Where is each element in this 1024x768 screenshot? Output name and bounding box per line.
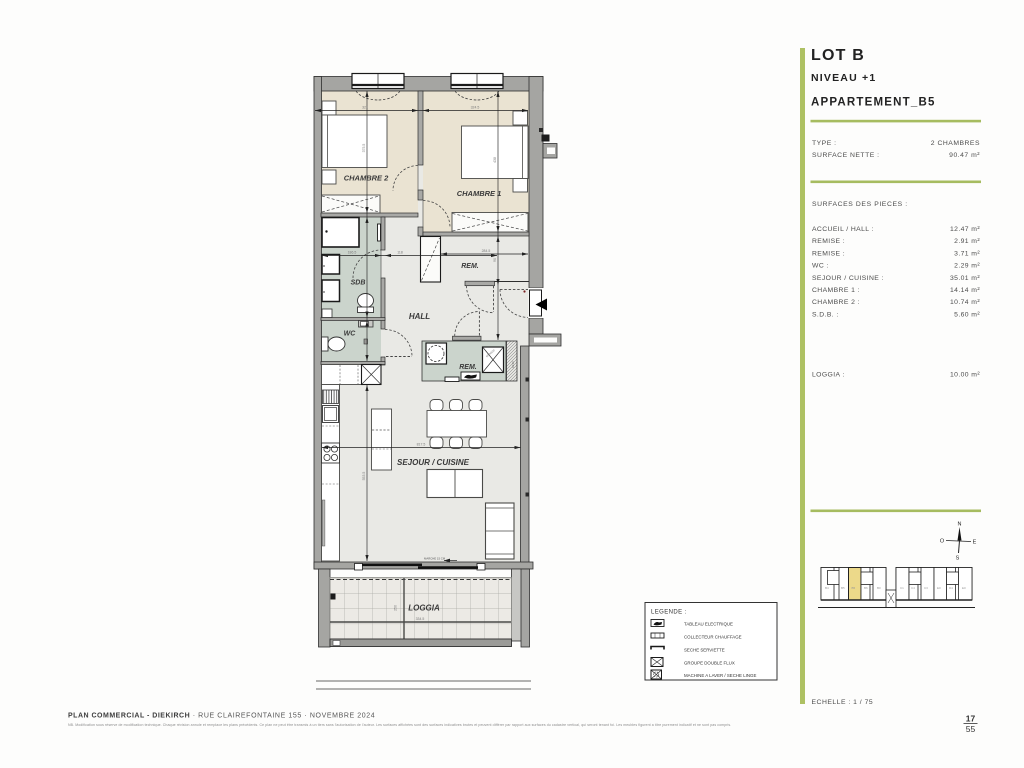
svg-text:ECHELLE : 1 / 75: ECHELLE : 1 / 75	[812, 699, 874, 706]
svg-text:CHAMBRE 2 :: CHAMBRE 2 :	[812, 299, 860, 306]
svg-text:35.01 m²: 35.01 m²	[950, 275, 980, 282]
svg-text:GROUPE DOUBLE FLUX: GROUPE DOUBLE FLUX	[684, 661, 735, 666]
svg-text:REM.: REM.	[461, 263, 479, 270]
svg-text:SURFACE NETTE :: SURFACE NETTE :	[812, 152, 880, 159]
svg-text:MARCHE 15 CM: MARCHE 15 CM	[424, 557, 446, 561]
svg-text:LOGGIA :: LOGGIA :	[812, 372, 845, 379]
svg-text:N: N	[958, 522, 962, 528]
svg-text:SEJOUR / CUISINE: SEJOUR / CUISINE	[397, 458, 470, 467]
svg-text:REMISE :: REMISE :	[812, 238, 845, 245]
svg-text:S: S	[956, 556, 960, 562]
svg-text:3.71 m²: 3.71 m²	[954, 250, 980, 257]
svg-text:55: 55	[966, 724, 976, 734]
svg-text:17: 17	[966, 714, 976, 724]
svg-text:E0: E0	[937, 586, 941, 590]
svg-text:O: O	[940, 539, 945, 545]
svg-text:E0: E0	[962, 586, 966, 590]
svg-text:12.47 m²: 12.47 m²	[950, 226, 980, 233]
svg-text:375.5: 375.5	[362, 144, 366, 153]
svg-text:817.5: 817.5	[417, 443, 426, 447]
svg-text:WC: WC	[344, 331, 357, 338]
svg-text:REMISE :: REMISE :	[812, 250, 845, 257]
svg-text:2.29 m²: 2.29 m²	[954, 263, 980, 270]
svg-text:B0: B0	[877, 586, 881, 590]
svg-text:HALL: HALL	[409, 312, 430, 321]
svg-text:WC :: WC :	[812, 263, 829, 270]
svg-text:LOGGIA: LOGGIA	[408, 604, 440, 613]
svg-text:250: 250	[394, 605, 398, 611]
svg-text:S.D.B. :: S.D.B. :	[812, 311, 839, 318]
svg-text:186.5: 186.5	[348, 251, 357, 255]
svg-text:RF30: RF30	[511, 361, 515, 368]
svg-text:553.5: 553.5	[362, 472, 366, 481]
svg-text:TABLEAU ELECTRIQUE: TABLEAU ELECTRIQUE	[684, 622, 733, 627]
svg-text:PLAN COMMERCIAL - DIEKIRCH · R: PLAN COMMERCIAL - DIEKIRCH · RUE CLAIREF…	[68, 713, 375, 720]
svg-text:D4: D4	[949, 586, 953, 590]
svg-text:CHAMBRE 1: CHAMBRE 1	[457, 189, 502, 198]
svg-text:10.74 m²: 10.74 m²	[950, 299, 980, 306]
svg-text:LOT B: LOT B	[811, 47, 865, 64]
svg-text:90: 90	[493, 258, 497, 262]
svg-text:SDB: SDB	[351, 280, 366, 287]
svg-text:CHAMBRE 1 :: CHAMBRE 1 :	[812, 287, 860, 294]
svg-text:5.60 m²: 5.60 m²	[954, 311, 980, 318]
svg-text:REM.: REM.	[459, 364, 477, 371]
svg-text:C1: C1	[900, 586, 904, 590]
svg-text:10.00 m²: 10.00 m²	[950, 372, 980, 379]
svg-text:MACHINE A LAVER / SECHE LINGE: MACHINE A LAVER / SECHE LINGE	[684, 673, 756, 678]
svg-text:NIVEAU +1: NIVEAU +1	[811, 72, 876, 84]
svg-text:CHAMBRE 2: CHAMBRE 2	[344, 174, 389, 183]
svg-text:SEJOUR / CUISINE :: SEJOUR / CUISINE :	[812, 275, 884, 282]
svg-text:B6: B6	[864, 586, 868, 590]
svg-text:TYPE :: TYPE :	[812, 140, 837, 147]
svg-text:321: 321	[362, 106, 368, 110]
svg-text:APPARTEMENT_B5: APPARTEMENT_B5	[811, 97, 936, 109]
svg-text:C3: C3	[924, 586, 928, 590]
svg-text:E: E	[973, 540, 977, 546]
svg-text:438: 438	[493, 157, 497, 163]
svg-text:NB. Modification sous réserve: NB. Modification sous réserve de modific…	[68, 723, 731, 727]
svg-text:90.47 m²: 90.47 m²	[949, 152, 980, 159]
svg-text:2 CHAMBRES: 2 CHAMBRES	[931, 140, 980, 147]
svg-text:SURFACES DES PIECES :: SURFACES DES PIECES :	[812, 201, 908, 208]
svg-text:B5: B5	[841, 586, 845, 590]
svg-text:334.5: 334.5	[416, 617, 425, 621]
svg-text:ACCUEIL / HALL :: ACCUEIL / HALL :	[812, 226, 874, 233]
svg-text:LEGENDE :: LEGENDE :	[651, 610, 687, 616]
svg-text:14.14 m²: 14.14 m²	[950, 287, 980, 294]
svg-text:COLLECTEUR CHAUFFAGE: COLLECTEUR CHAUFFAGE	[684, 635, 742, 640]
svg-text:284.5: 284.5	[482, 249, 491, 253]
svg-text:324.5: 324.5	[471, 106, 480, 110]
svg-text:C4: C4	[911, 586, 915, 590]
svg-text:SECHE SERVIETTE: SECHE SERVIETTE	[684, 648, 725, 653]
svg-text:B5: B5	[852, 586, 856, 590]
svg-text:2.91 m²: 2.91 m²	[954, 238, 980, 245]
svg-text:118: 118	[397, 251, 403, 255]
svg-text:B4: B4	[825, 586, 829, 590]
